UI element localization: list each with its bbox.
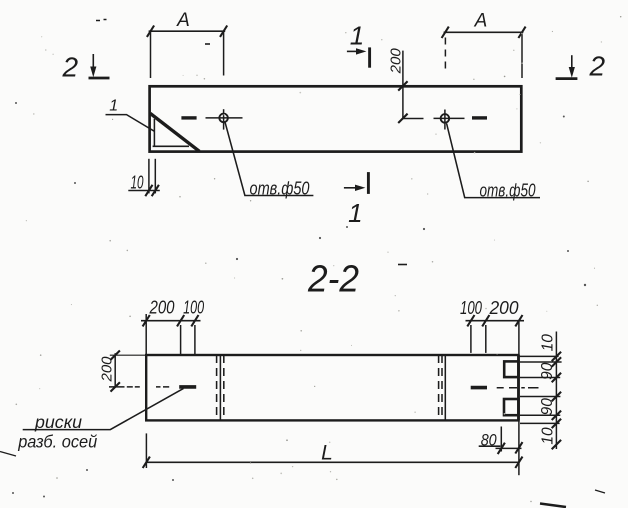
svg-text:100: 100	[183, 298, 204, 318]
svg-text:200: 200	[98, 356, 115, 383]
svg-text:90: 90	[539, 398, 556, 416]
svg-text:2-2: 2-2	[307, 259, 359, 301]
svg-text:A: A	[474, 10, 488, 31]
svg-text:100: 100	[460, 298, 482, 318]
svg-text:80: 80	[481, 432, 498, 450]
svg-text:L: L	[321, 441, 333, 464]
svg-text:200: 200	[149, 298, 175, 318]
svg-text:90: 90	[539, 362, 556, 380]
svg-text:риски: риски	[34, 412, 82, 432]
svg-text:200: 200	[489, 298, 519, 318]
svg-text:2: 2	[62, 51, 79, 82]
svg-text:отв.ф50: отв.ф50	[250, 178, 310, 198]
svg-text:1: 1	[348, 198, 362, 228]
svg-text:10: 10	[539, 334, 556, 352]
svg-text:отв.ф50: отв.ф50	[480, 180, 536, 200]
svg-text:1: 1	[109, 97, 118, 114]
svg-text:A: A	[176, 10, 190, 31]
svg-text:2: 2	[589, 51, 606, 82]
svg-text:10: 10	[131, 172, 144, 192]
svg-text:1: 1	[350, 20, 364, 50]
svg-text:200: 200	[388, 48, 405, 75]
svg-text:10: 10	[539, 427, 556, 445]
svg-text:разб. осей: разб. осей	[17, 432, 97, 452]
